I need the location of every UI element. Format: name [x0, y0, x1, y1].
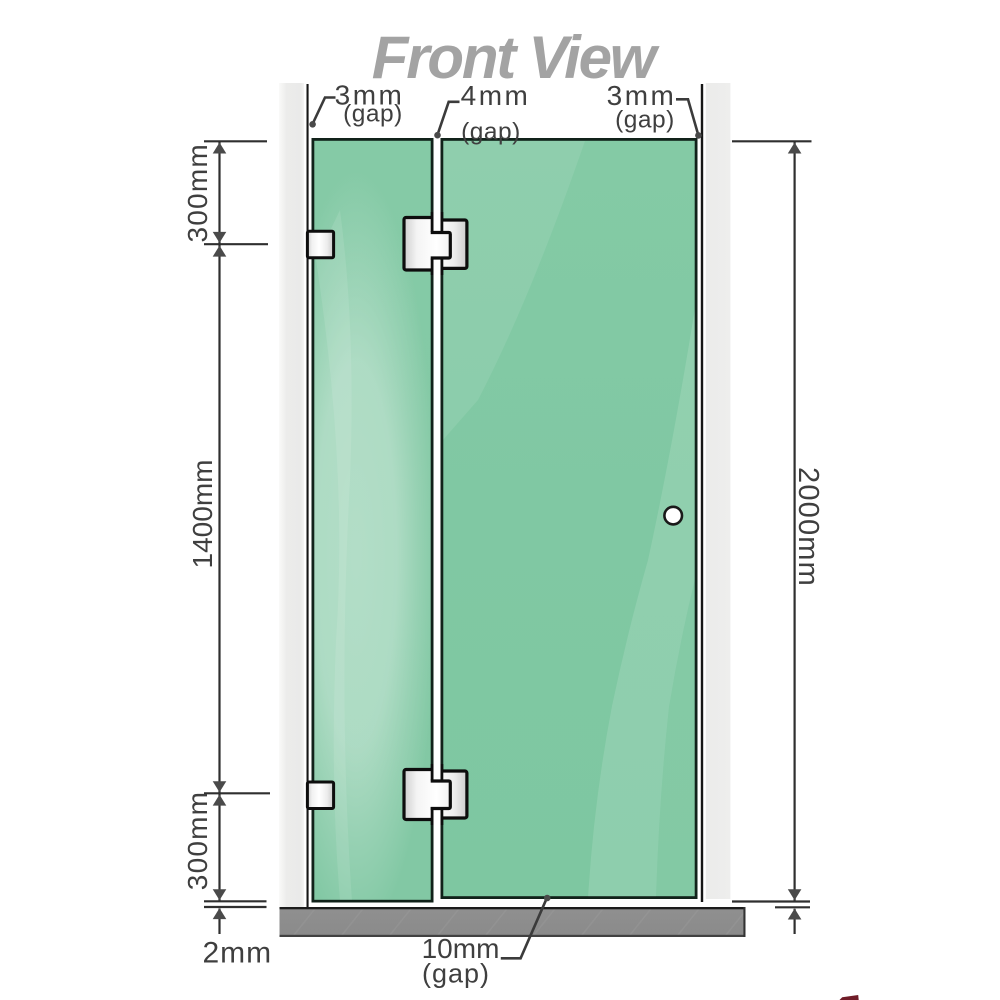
- svg-text:(gap): (gap): [343, 101, 403, 128]
- svg-text:(gap): (gap): [422, 959, 490, 989]
- svg-text:(gap): (gap): [615, 107, 675, 134]
- svg-text:2mm: 2mm: [202, 937, 272, 970]
- svg-text:300mm: 300mm: [182, 143, 213, 242]
- svg-text:300mm: 300mm: [182, 791, 213, 890]
- svg-text:1400mm: 1400mm: [187, 460, 218, 569]
- svg-text:(gap): (gap): [461, 119, 521, 146]
- svg-text:2000mm: 2000mm: [792, 467, 824, 587]
- svg-text:4mm: 4mm: [461, 80, 531, 111]
